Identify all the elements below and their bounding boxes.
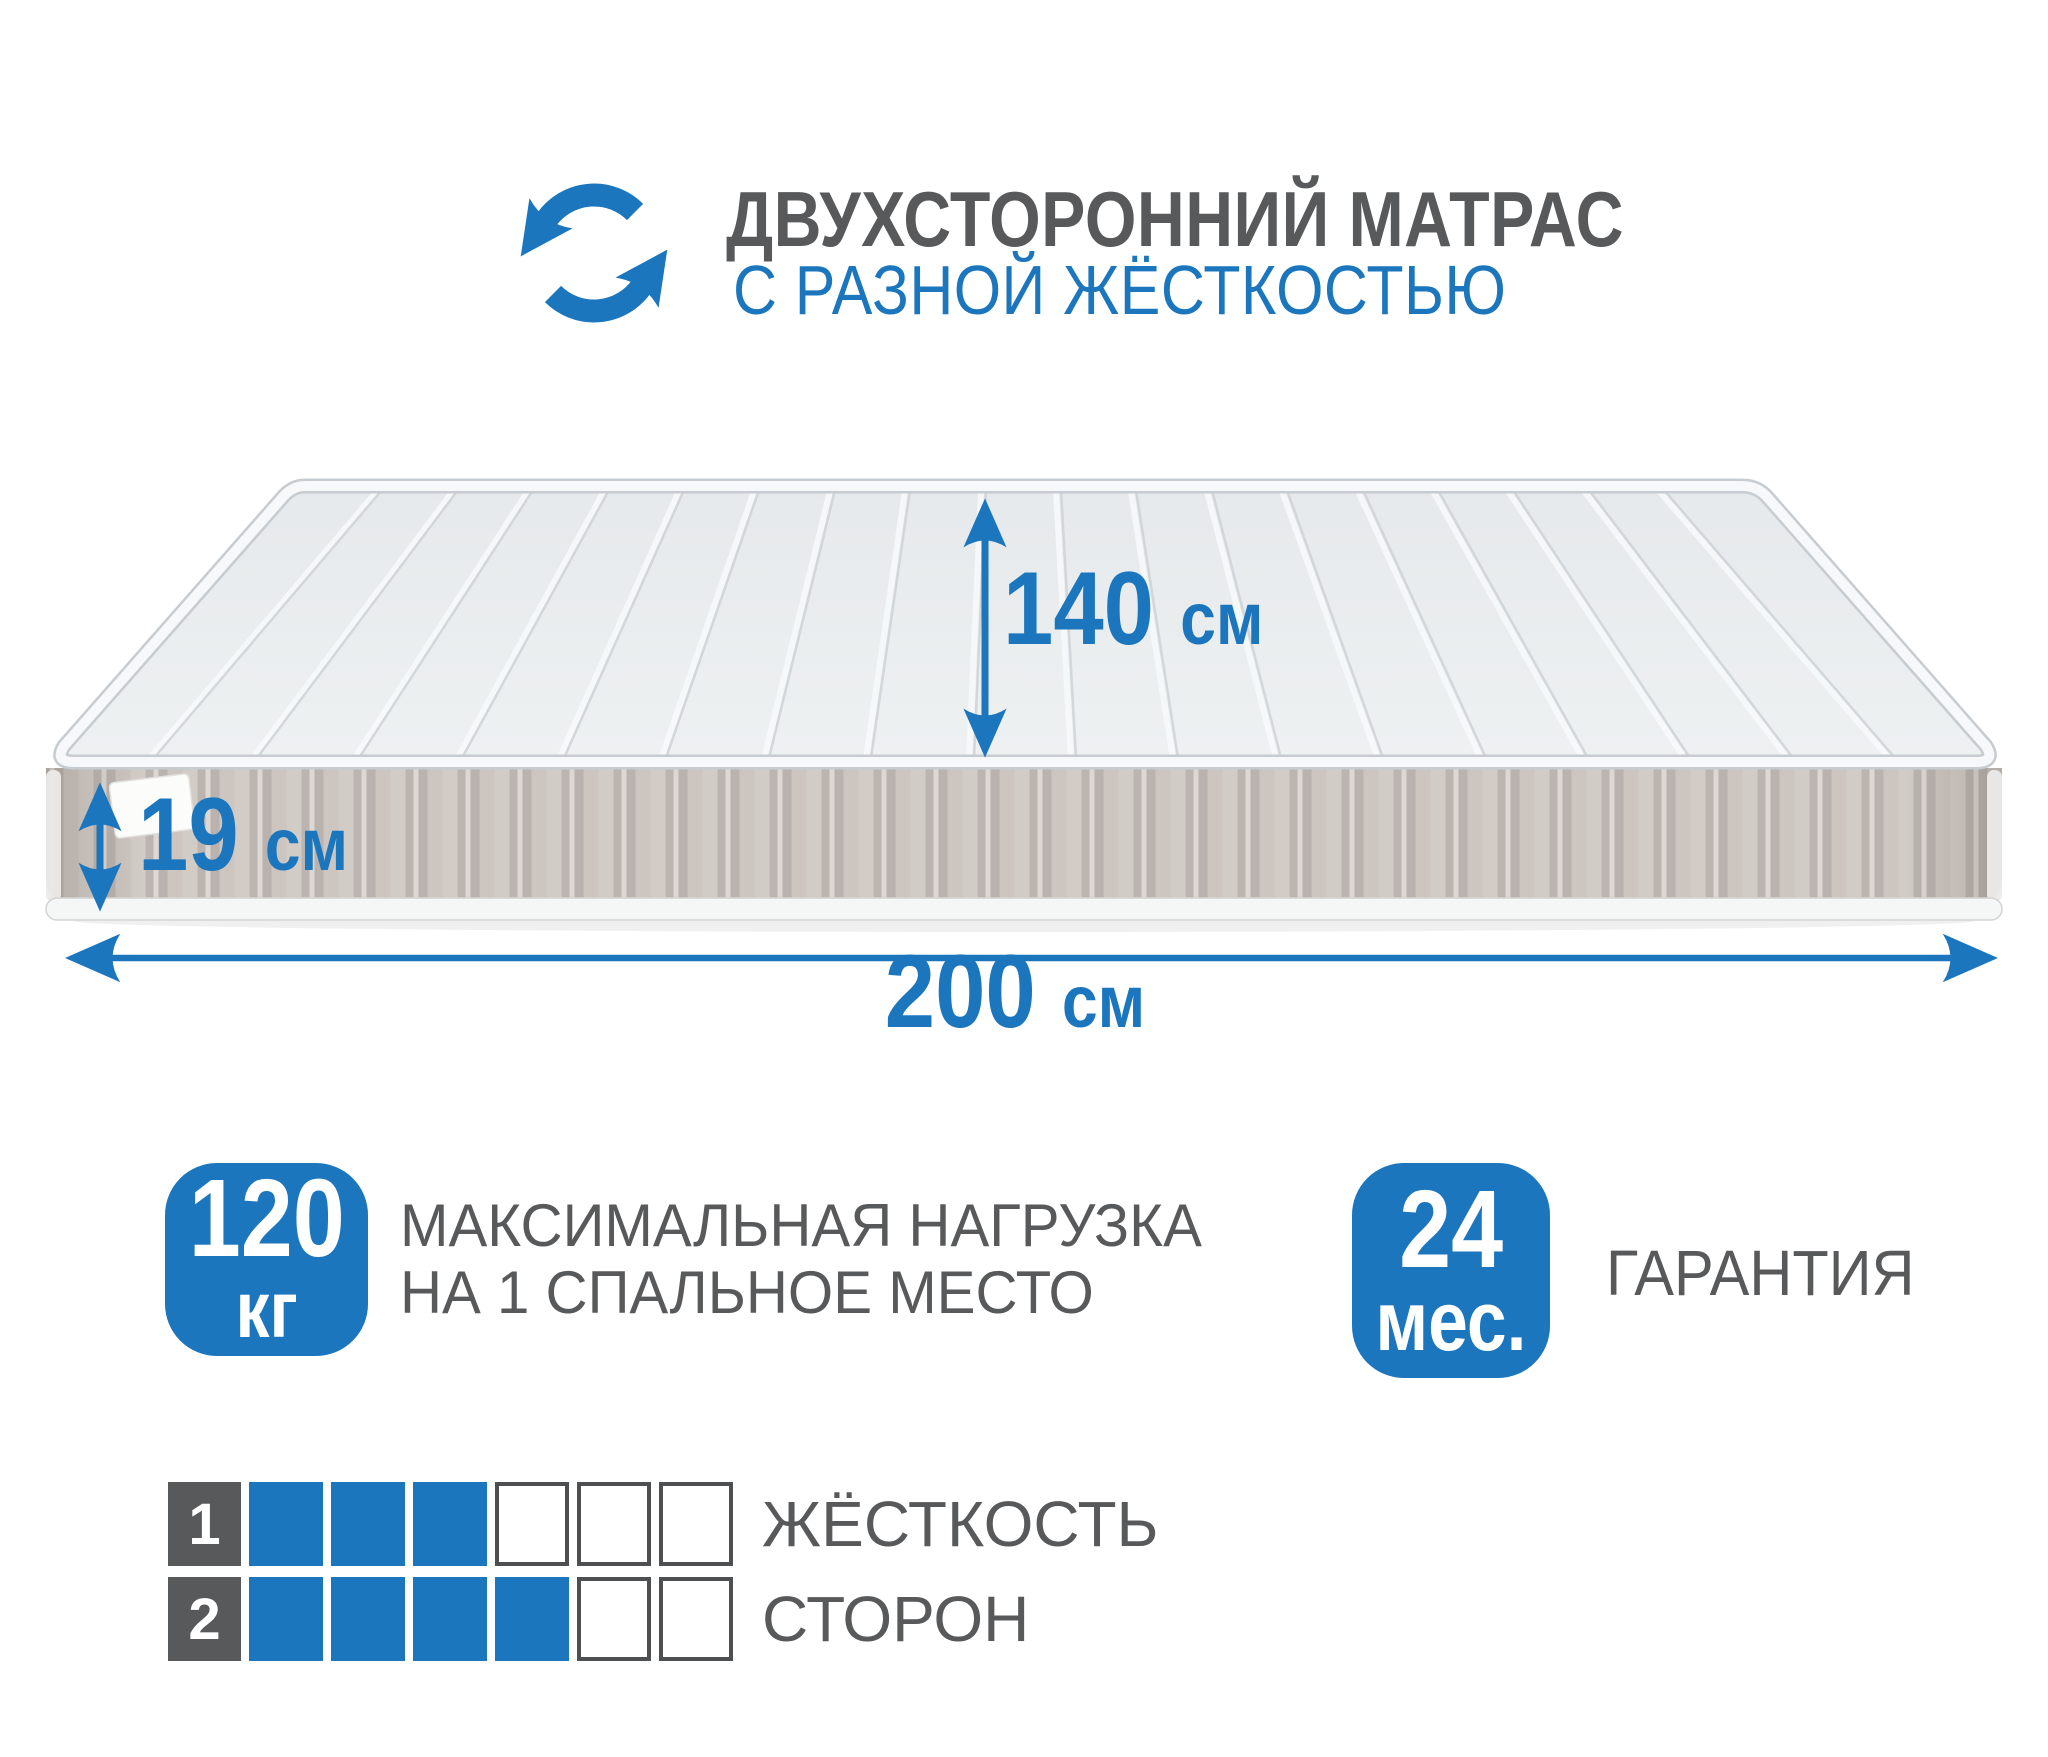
warranty-value: 24 xyxy=(1399,1182,1503,1278)
mattress-infographic: { "colors": { "accent_blue": "#1b76bd", … xyxy=(0,0,2048,1757)
firmness-caption-line1: ЖЁСТКОСТЬ xyxy=(762,1482,1159,1566)
firmness-cell-empty xyxy=(659,1482,733,1566)
max-load-caption-line2: НА 1 СПАЛЬНОЕ МЕСТО xyxy=(400,1259,1202,1326)
firmness-cell-filled xyxy=(331,1482,405,1566)
warranty-unit: мес. xyxy=(1375,1282,1526,1360)
firmness-chart: 1 2 xyxy=(168,1482,741,1672)
firmness-cell-empty xyxy=(659,1577,733,1661)
max-load-caption: МАКСИМАЛЬНАЯ НАГРУЗКА НА 1 СПАЛЬНОЕ МЕСТ… xyxy=(400,1192,1202,1326)
max-load-value: 120 xyxy=(188,1171,344,1267)
firmness-cell-filled xyxy=(249,1577,323,1661)
page-title: ДВУХСТОРОННИЙ МАТРАС xyxy=(726,180,1624,258)
firmness-cell-empty xyxy=(577,1577,651,1661)
firmness-side-label: 2 xyxy=(168,1577,241,1661)
rotate-arrows-icon xyxy=(505,172,683,334)
max-load-caption-line1: МАКСИМАЛЬНАЯ НАГРУЗКА xyxy=(400,1192,1202,1259)
max-load-badge: 120 кг xyxy=(165,1163,368,1356)
warranty-badge: 24 мес. xyxy=(1352,1163,1550,1378)
width-unit: см xyxy=(1180,582,1263,656)
firmness-cell-filled xyxy=(331,1577,405,1661)
height-dimension-label: 19 см xyxy=(138,783,348,887)
firmness-side-label: 1 xyxy=(168,1482,241,1566)
firmness-cells-side1 xyxy=(249,1482,741,1566)
firmness-cell-empty xyxy=(577,1482,651,1566)
length-value: 200 xyxy=(885,940,1036,1044)
width-value: 140 xyxy=(1003,557,1154,661)
height-value: 19 xyxy=(138,783,239,887)
firmness-cell-filled xyxy=(495,1577,569,1661)
firmness-cell-filled xyxy=(249,1482,323,1566)
width-dimension-label: 140 см xyxy=(1003,557,1264,661)
height-unit: см xyxy=(265,808,348,882)
firmness-row-side1: 1 xyxy=(168,1482,741,1566)
length-dimension-label: 200 см xyxy=(885,940,1146,1044)
warranty-caption: ГАРАНТИЯ xyxy=(1606,1240,1914,1306)
page-subtitle: С РАЗНОЙ ЖЁСТКОСТЬЮ xyxy=(733,254,1506,326)
max-load-unit: кг xyxy=(235,1271,297,1349)
mattress-bottom-piping xyxy=(46,898,2002,920)
length-unit: см xyxy=(1062,965,1145,1039)
firmness-cell-empty xyxy=(495,1482,569,1566)
firmness-cells-side2 xyxy=(249,1577,741,1661)
firmness-cell-filled xyxy=(413,1482,487,1566)
firmness-cell-filled xyxy=(413,1577,487,1661)
firmness-caption-line2: СТОРОН xyxy=(762,1577,1029,1661)
firmness-row-side2: 2 xyxy=(168,1577,741,1661)
